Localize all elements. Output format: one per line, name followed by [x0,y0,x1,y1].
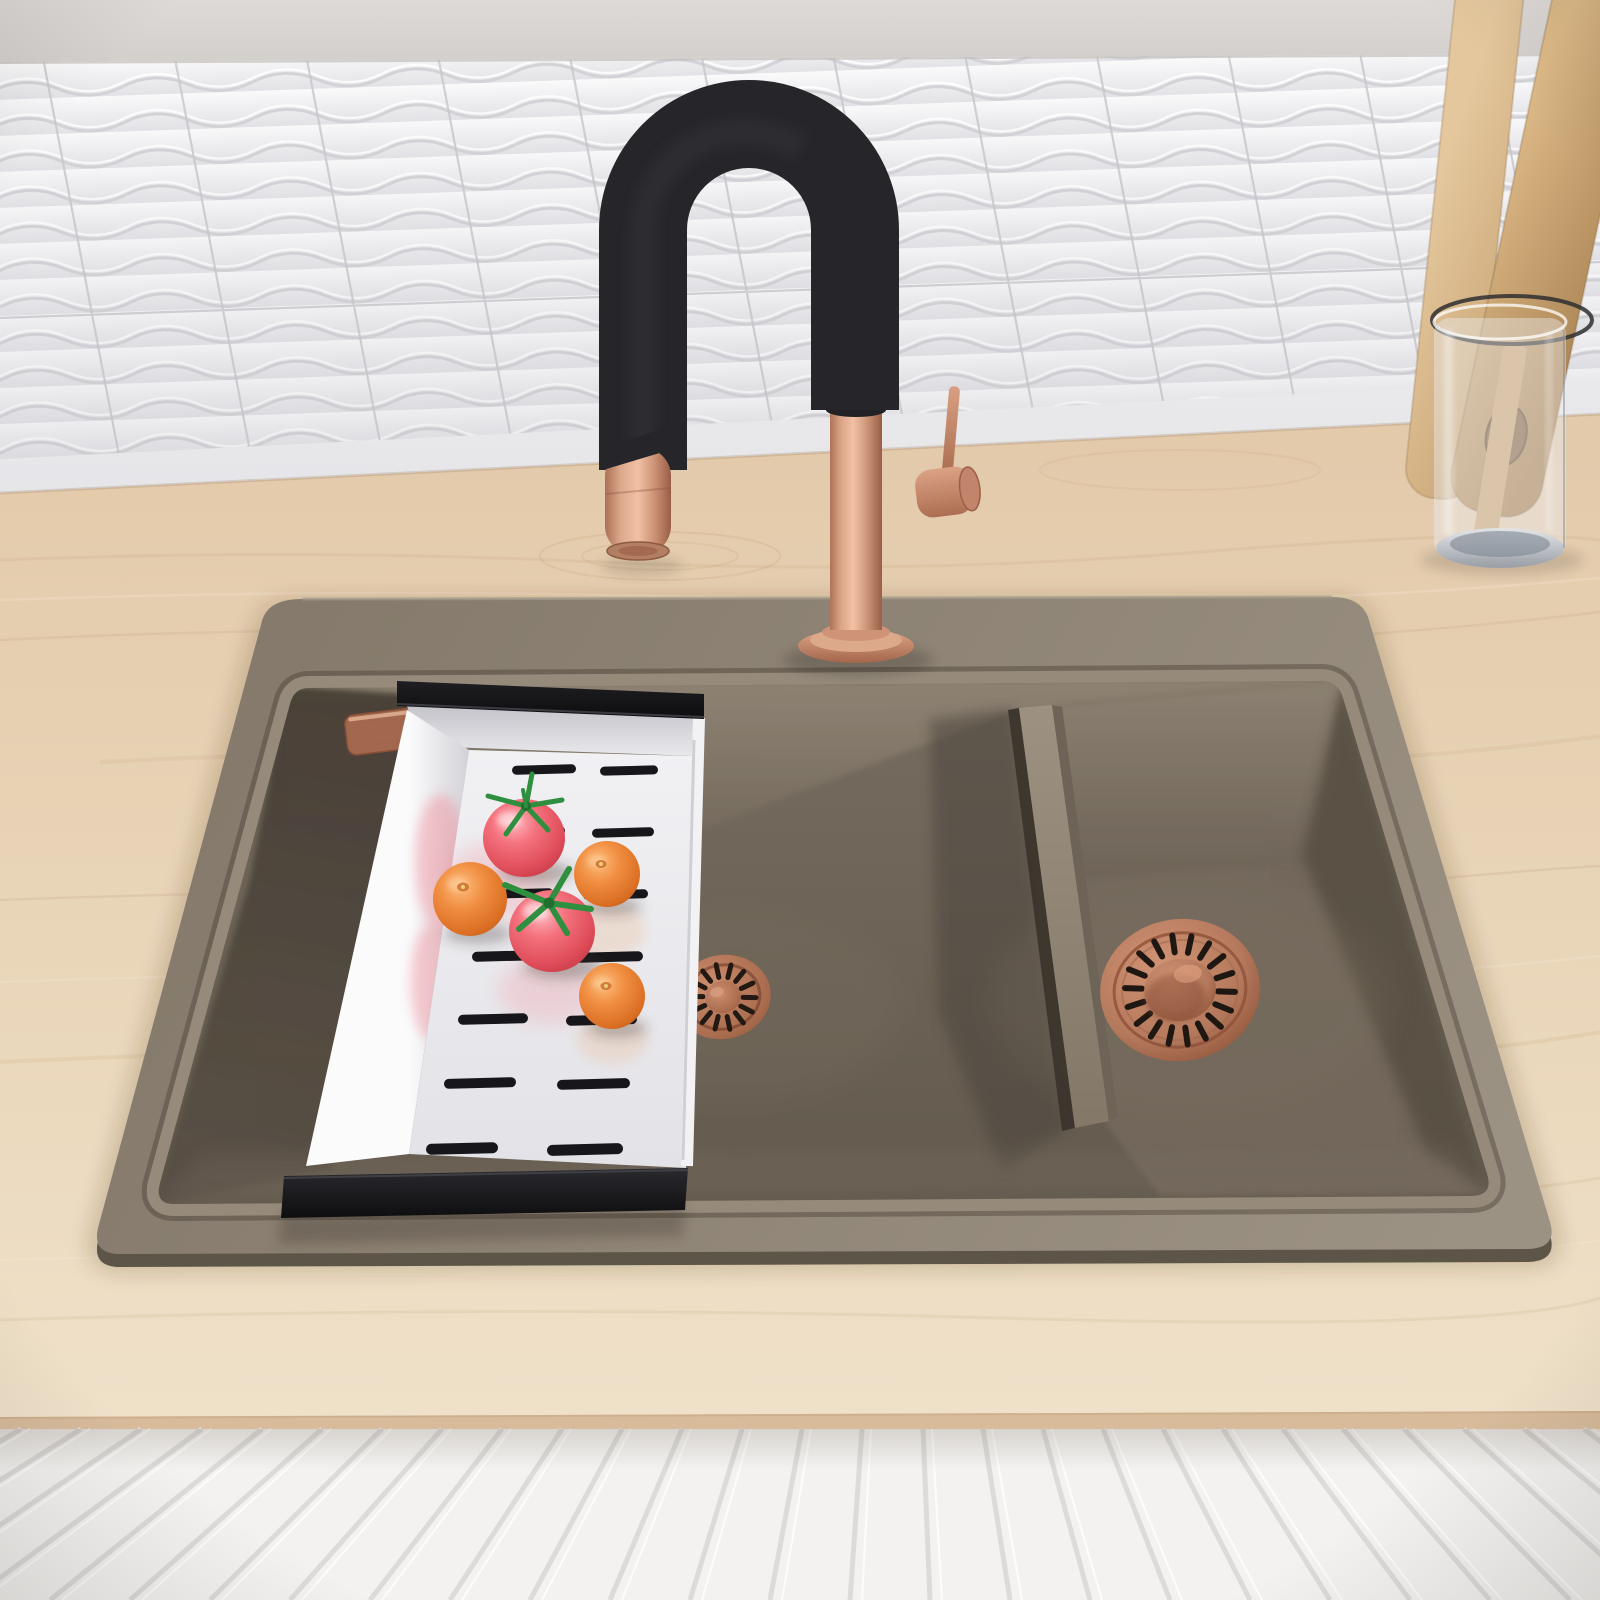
kitchen-sink-render [0,0,1600,1600]
vignette [0,0,1600,1600]
